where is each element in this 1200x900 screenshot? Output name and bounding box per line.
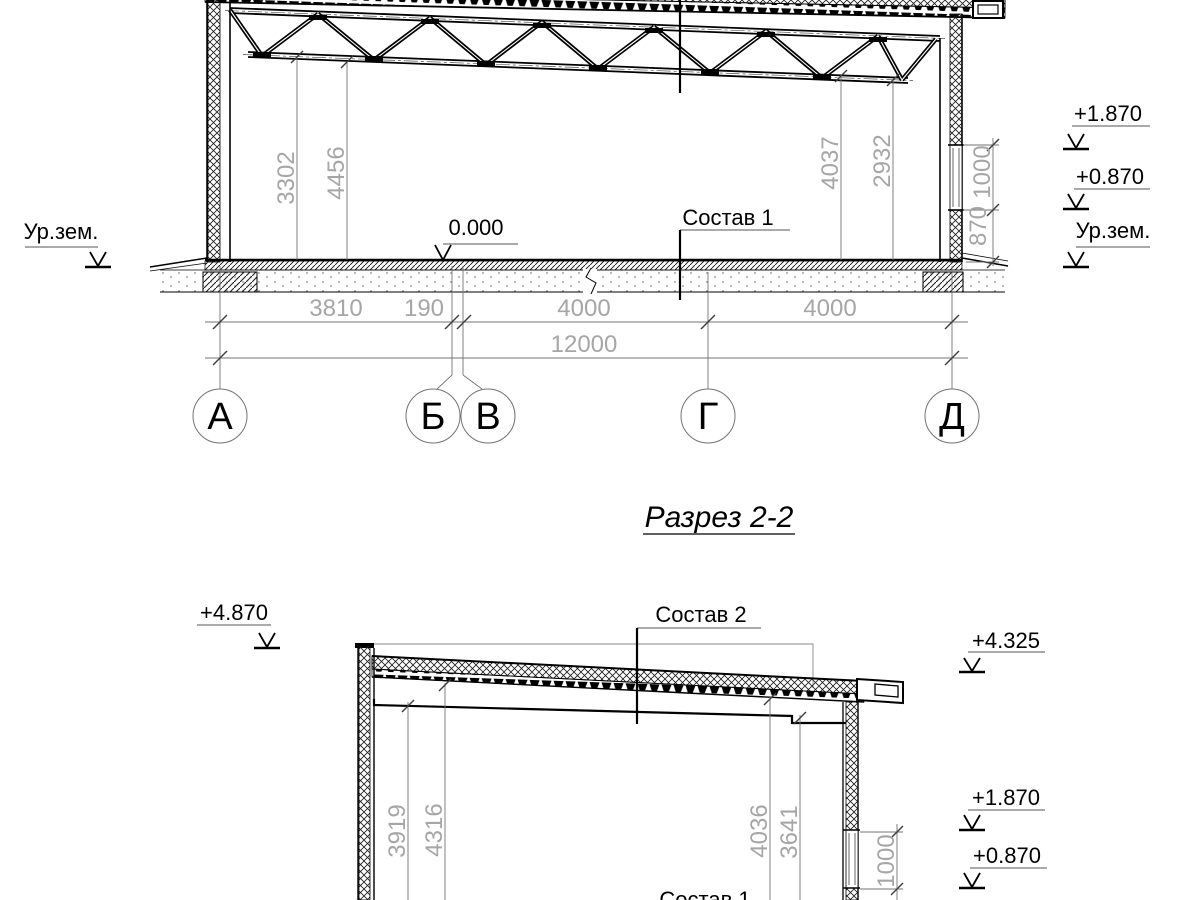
elev-4325-label: +4.325 (972, 628, 1040, 653)
dim-3919: 3919 (384, 804, 411, 857)
upper-right-wall (940, 14, 964, 262)
ground-level-label-right: Ур.зем. (1076, 218, 1151, 243)
ground-level-label-left: Ур.зем. (24, 219, 99, 244)
upper-floor (150, 253, 1008, 294)
axis-label-v: В (475, 396, 500, 438)
dim-4036: 4036 (746, 804, 773, 857)
dim-3302: 3302 (273, 151, 300, 204)
dim-4456: 4456 (323, 146, 350, 199)
zero-level-mark: 0.000 (435, 215, 518, 260)
section-drawing-canvas: 0.000 Состав 1 3302 4456 4037 2932 (0, 0, 1200, 900)
dim-4316: 4316 (421, 803, 448, 856)
floor-composition-label: Состав 1 (682, 205, 773, 230)
elev-4870-label: +4.870 (200, 600, 268, 625)
lower-window-dimension: 1000 (860, 824, 903, 900)
lower-left-wall (355, 643, 374, 900)
dim-4037: 4037 (817, 136, 844, 189)
dim-1000-lower: 1000 (873, 834, 900, 887)
dim-12000: 12000 (551, 331, 618, 358)
apron-left (150, 258, 207, 267)
dim-1000-upper: 1000 (969, 145, 996, 198)
axis-label-g: Г (698, 396, 719, 438)
axis-bubbles: А Б В Г Д (193, 389, 979, 443)
axis-label-d: Д (939, 396, 965, 438)
upper-vertical-dimensions: 3302 4456 4037 2932 (273, 51, 899, 260)
elev-1870-lower-label: +1.870 (972, 785, 1040, 810)
lower-section-drawing: +4.870 Состав 2 (197, 600, 1047, 900)
dim-4000-a: 4000 (557, 295, 610, 322)
lower-window-band (846, 830, 858, 888)
lower-vertical-dimensions: 3919 4316 4036 3641 (384, 679, 806, 900)
zero-level-label: 0.000 (448, 215, 503, 240)
dim-190: 190 (404, 295, 444, 322)
lower-right-wall (843, 701, 860, 900)
elev-0870-lower-label: +0.870 (973, 843, 1041, 868)
dim-2932: 2932 (869, 134, 896, 187)
elev-0870-label: +0.870 (1076, 164, 1144, 189)
lower-elevation-mark-right-top: +4.325 (959, 628, 1045, 672)
dim-4000-b: 4000 (803, 295, 856, 322)
upper-left-wall (207, 0, 230, 262)
dim-870: 870 (965, 206, 992, 246)
upper-wall-dimensions: 1000 870 (963, 138, 999, 268)
dim-3641: 3641 (776, 805, 803, 858)
lower-elevation-mark-left: +4.870 (197, 600, 280, 648)
upper-section-drawing: 0.000 Состав 1 3302 4456 4037 2932 (24, 0, 1151, 443)
floor-composition-label-partial: Состав 1 (659, 887, 750, 900)
foundation-right (923, 272, 963, 292)
drawing-title-block: Разрез 2-2 (643, 501, 795, 534)
axis-label-a: А (207, 396, 233, 438)
foundation-left (203, 272, 257, 292)
upper-window-band (950, 145, 962, 210)
lower-elevation-marks-right: +1.870 +0.870 (959, 785, 1047, 888)
roof-composition-label: Состав 2 (655, 602, 746, 627)
dim-3810: 3810 (309, 295, 362, 322)
drawing-title: Разрез 2-2 (645, 501, 794, 534)
elev-1870-label: +1.870 (1074, 101, 1142, 126)
upper-ground-mark-left: Ур.зем. (24, 219, 111, 267)
roof-composition-leader: Состав 2 (637, 602, 761, 724)
upper-elevation-marks-right: +1.870 +0.870 Ур.зем. (1063, 101, 1150, 267)
axis-label-b: Б (421, 396, 446, 438)
